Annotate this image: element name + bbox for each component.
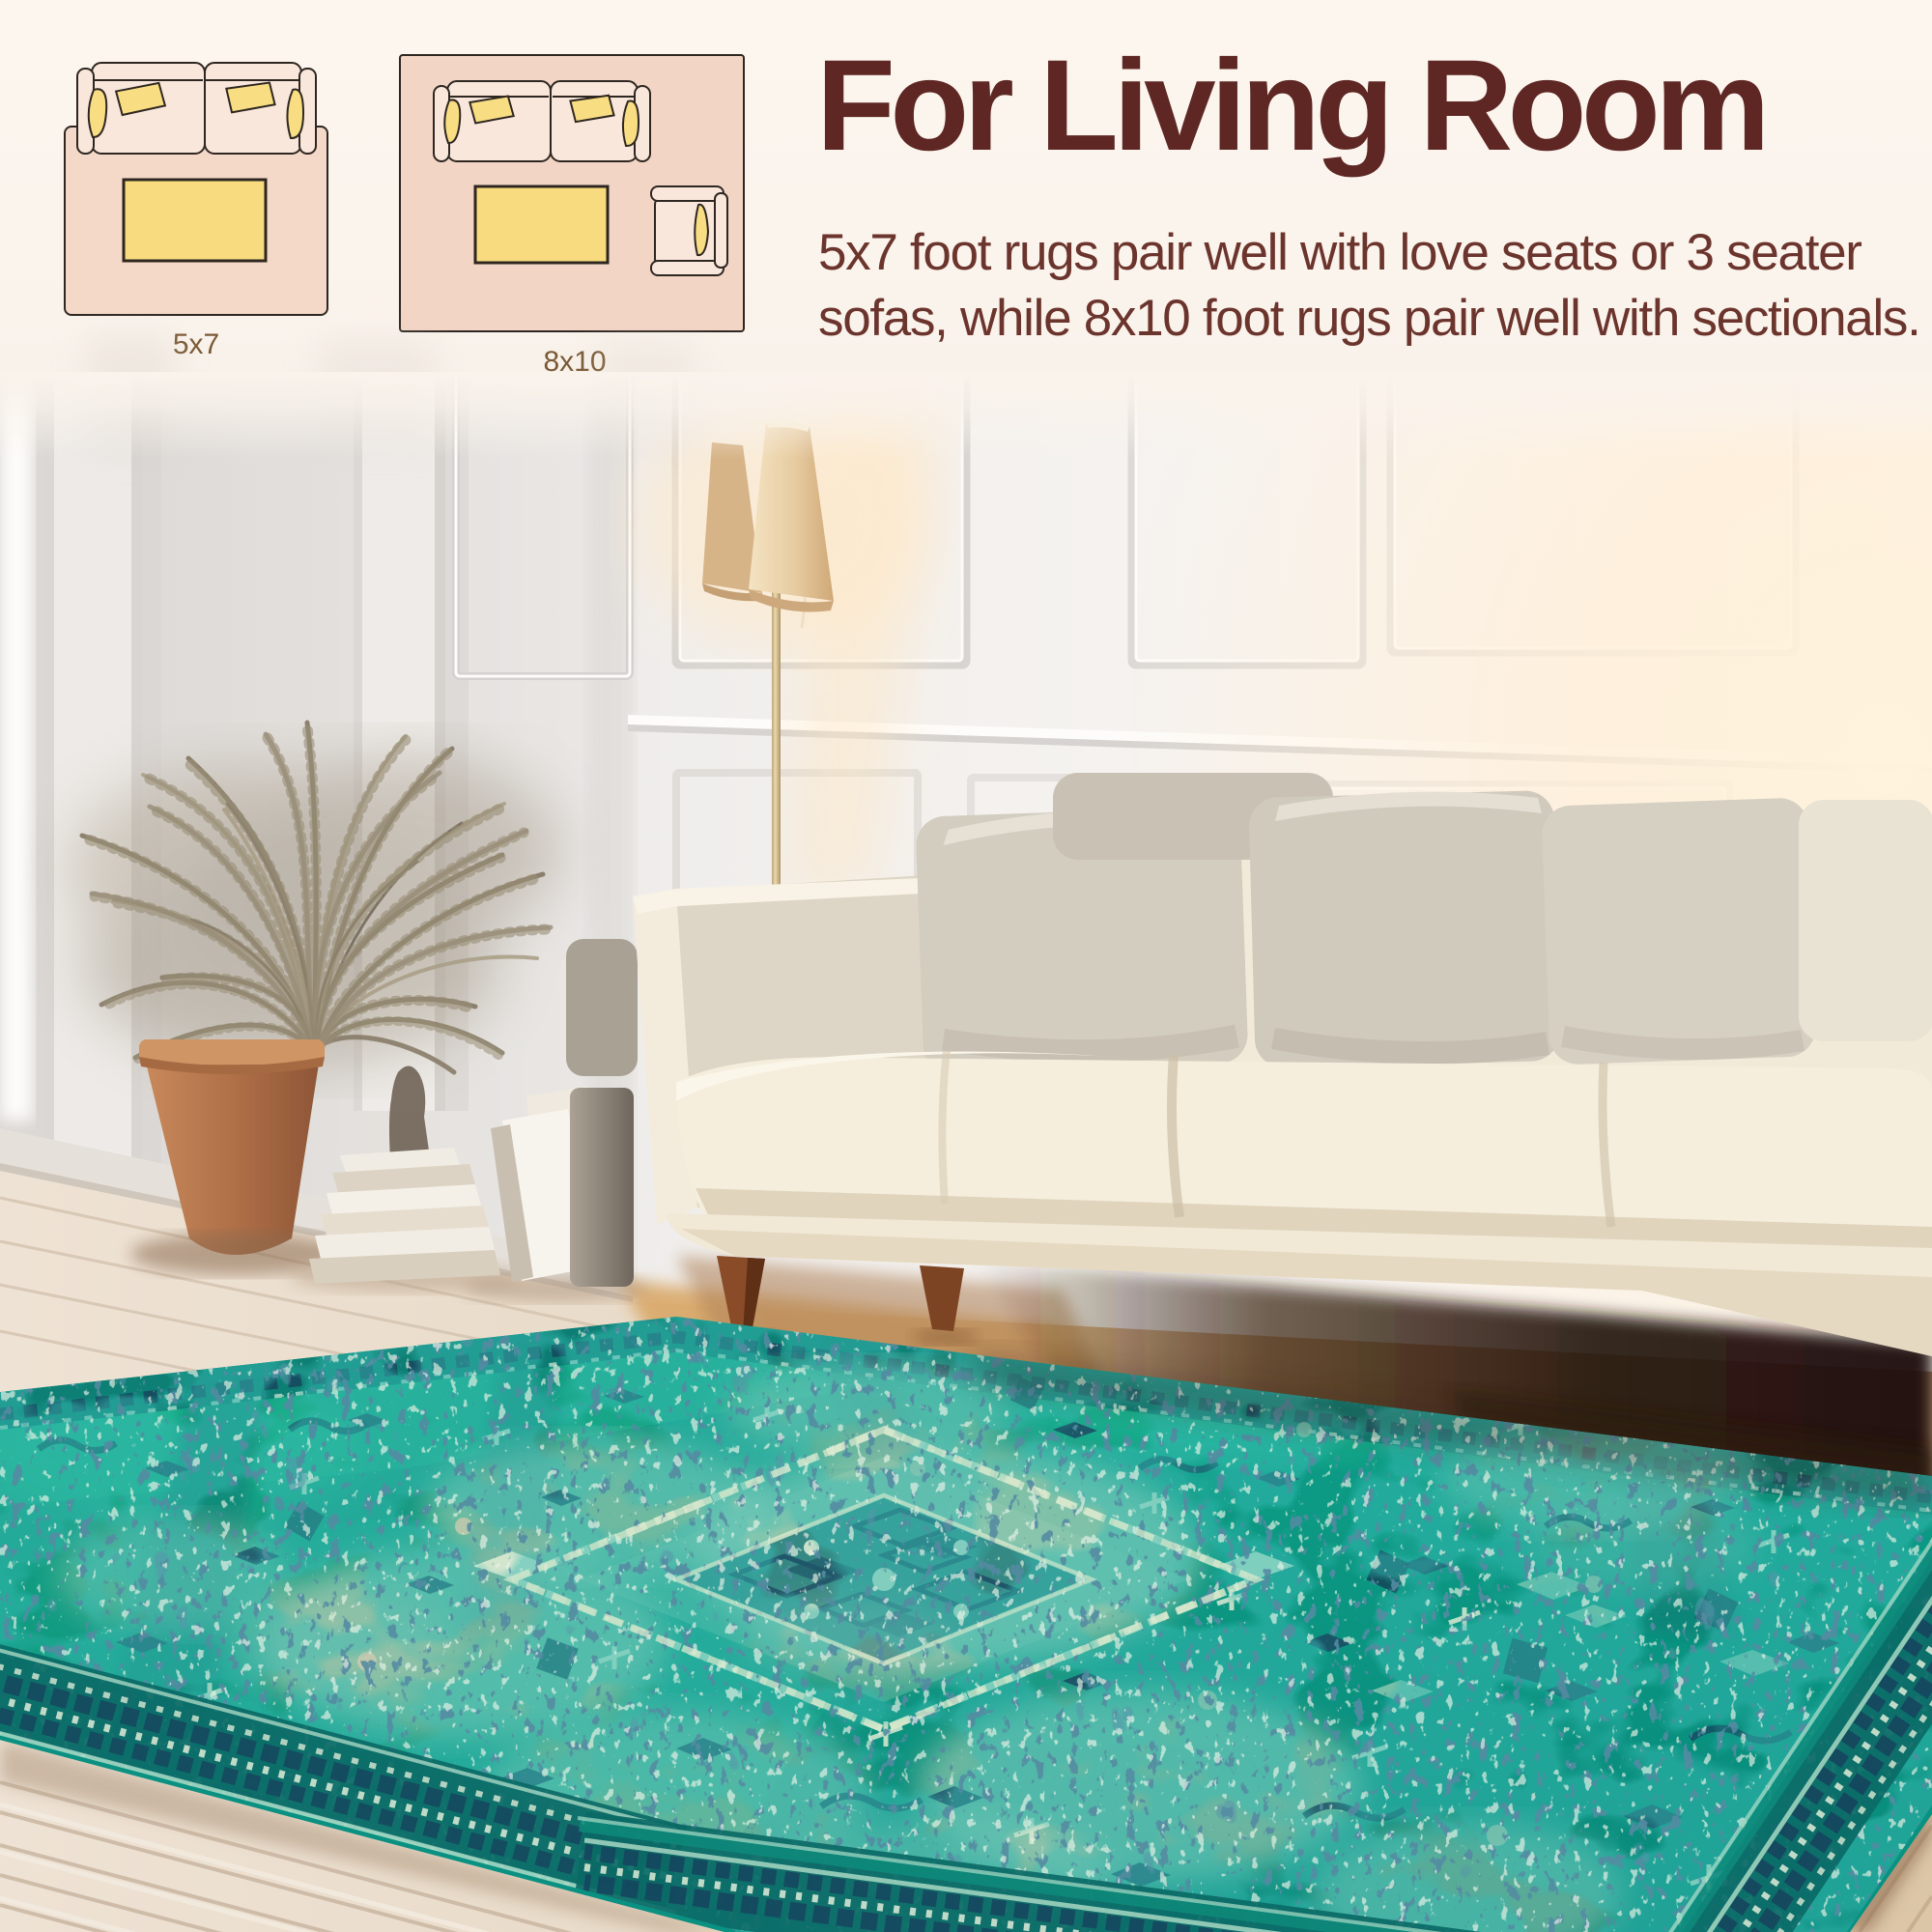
svg-text:5x7: 5x7 <box>173 328 219 360</box>
